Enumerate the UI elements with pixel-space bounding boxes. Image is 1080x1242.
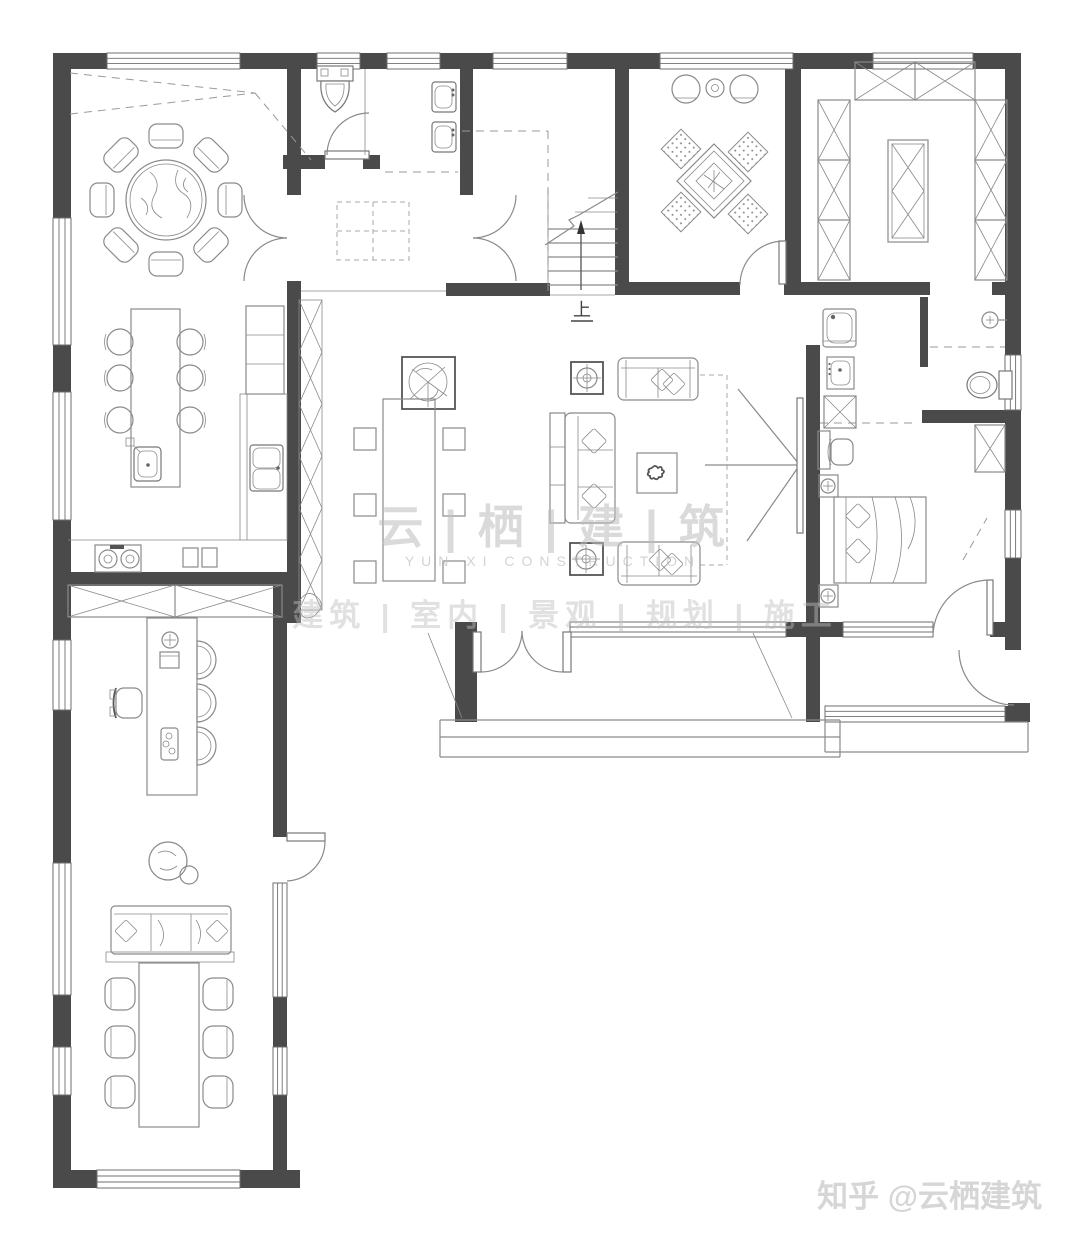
kitchen-counter	[240, 394, 287, 540]
vanity-sinks	[432, 82, 456, 152]
floor-plan-drawing: 上	[0, 0, 1080, 1242]
kitchen-island-chairs	[105, 329, 206, 433]
window-top-wc-2	[387, 53, 440, 69]
kitchen-low-cabinet-row	[68, 585, 282, 617]
plants	[149, 842, 198, 884]
window-top-stair	[493, 53, 567, 69]
watermark-brand-cn: 云 | 栖 | 建 | 筑	[377, 501, 728, 553]
porch-ramp-lines	[428, 633, 792, 718]
coffee-table	[637, 453, 677, 493]
kitchen-stove	[95, 545, 141, 572]
kitchen-island-table	[126, 309, 180, 487]
wardrobe-left	[818, 100, 850, 280]
bathroom-top	[317, 66, 456, 155]
bedroom	[818, 425, 1005, 607]
main-entry-double-door	[473, 631, 571, 672]
loveseat-top	[618, 358, 698, 400]
plant-icon	[648, 466, 664, 479]
round-armchairs-top	[672, 75, 758, 103]
nightstand-top	[819, 475, 838, 497]
kitchen-cutting-board	[183, 548, 217, 567]
window-bedroom-south	[843, 622, 933, 637]
staircase: 上	[545, 190, 618, 321]
floor-plan: 上	[0, 0, 1080, 1242]
meeting-chairs	[105, 978, 233, 1108]
kitchen	[68, 306, 287, 617]
toilet-right	[967, 371, 1012, 399]
teahouse-room	[105, 842, 234, 1127]
double-swing-door-stairhall	[473, 195, 516, 281]
window-top-tearoom	[660, 53, 793, 69]
mahjong-room	[661, 75, 768, 234]
stair-up-label: 上	[573, 300, 591, 320]
office-chair	[110, 688, 142, 718]
skylight-grid	[337, 202, 409, 260]
floor-lamp-table-top	[571, 362, 603, 394]
window-left-2	[53, 392, 71, 520]
window-left-4	[53, 863, 71, 995]
watermark-brand-en: YUN XI CONSTRUCTION	[405, 553, 701, 569]
bench-sofa	[111, 906, 231, 954]
dashed-guides	[70, 73, 1005, 560]
cloakroom	[818, 62, 1007, 280]
toilet-top	[317, 66, 353, 112]
window-wing-east-2	[273, 1047, 287, 1095]
door-tearoom-top	[740, 241, 786, 285]
window-left-1	[53, 218, 71, 345]
screen-partition	[299, 300, 322, 618]
washing-machine	[823, 309, 856, 347]
decor-plant-table	[402, 357, 455, 409]
watermark-credit: 知乎 @云栖建筑	[817, 1179, 1042, 1214]
bed	[834, 497, 926, 583]
window-top-dining	[107, 53, 240, 69]
meeting-table	[139, 963, 199, 1127]
window-left-5	[53, 1047, 71, 1095]
projection-screen	[797, 398, 803, 533]
window-bottom-left-wing	[97, 1170, 240, 1188]
double-swing-door-dining	[244, 195, 287, 281]
office-desk	[147, 618, 197, 795]
window-terrace-south	[825, 706, 1005, 722]
kitchen-tall-cabinet	[246, 306, 284, 394]
utility-corridor	[823, 309, 856, 428]
window-right-bedroom	[1005, 510, 1021, 558]
window-left-3	[53, 640, 71, 710]
side-table	[706, 79, 724, 97]
watermark-services: 建筑 | 室内 | 景观 | 规划 | 施工	[292, 598, 838, 633]
wall-lamp-icon	[982, 312, 1007, 328]
round-dining-chairs	[90, 124, 242, 276]
utility-sink	[827, 357, 854, 389]
door-wc-top	[325, 113, 369, 159]
wardrobe-right	[975, 100, 1007, 280]
side-porch	[825, 722, 1028, 752]
round-dining-table	[126, 160, 206, 240]
bedroom-wardrobe	[975, 425, 1005, 472]
bar-arc-chairs	[197, 641, 216, 765]
watermarks: 云 | 栖 | 建 | 筑 YUN XI CONSTRUCTION 建筑 | 室…	[292, 501, 1042, 1214]
office-area	[110, 618, 216, 795]
entry-porch	[428, 633, 840, 757]
window-wing-east-1	[273, 883, 287, 997]
door-terrace-east	[959, 650, 1014, 705]
cloakroom-island	[888, 140, 928, 242]
bedroom-chair	[828, 439, 853, 465]
door-teahouse-east	[287, 833, 325, 881]
stair-up-arrow	[577, 220, 585, 290]
door-bedroom	[933, 580, 993, 635]
living-hall	[299, 300, 803, 618]
